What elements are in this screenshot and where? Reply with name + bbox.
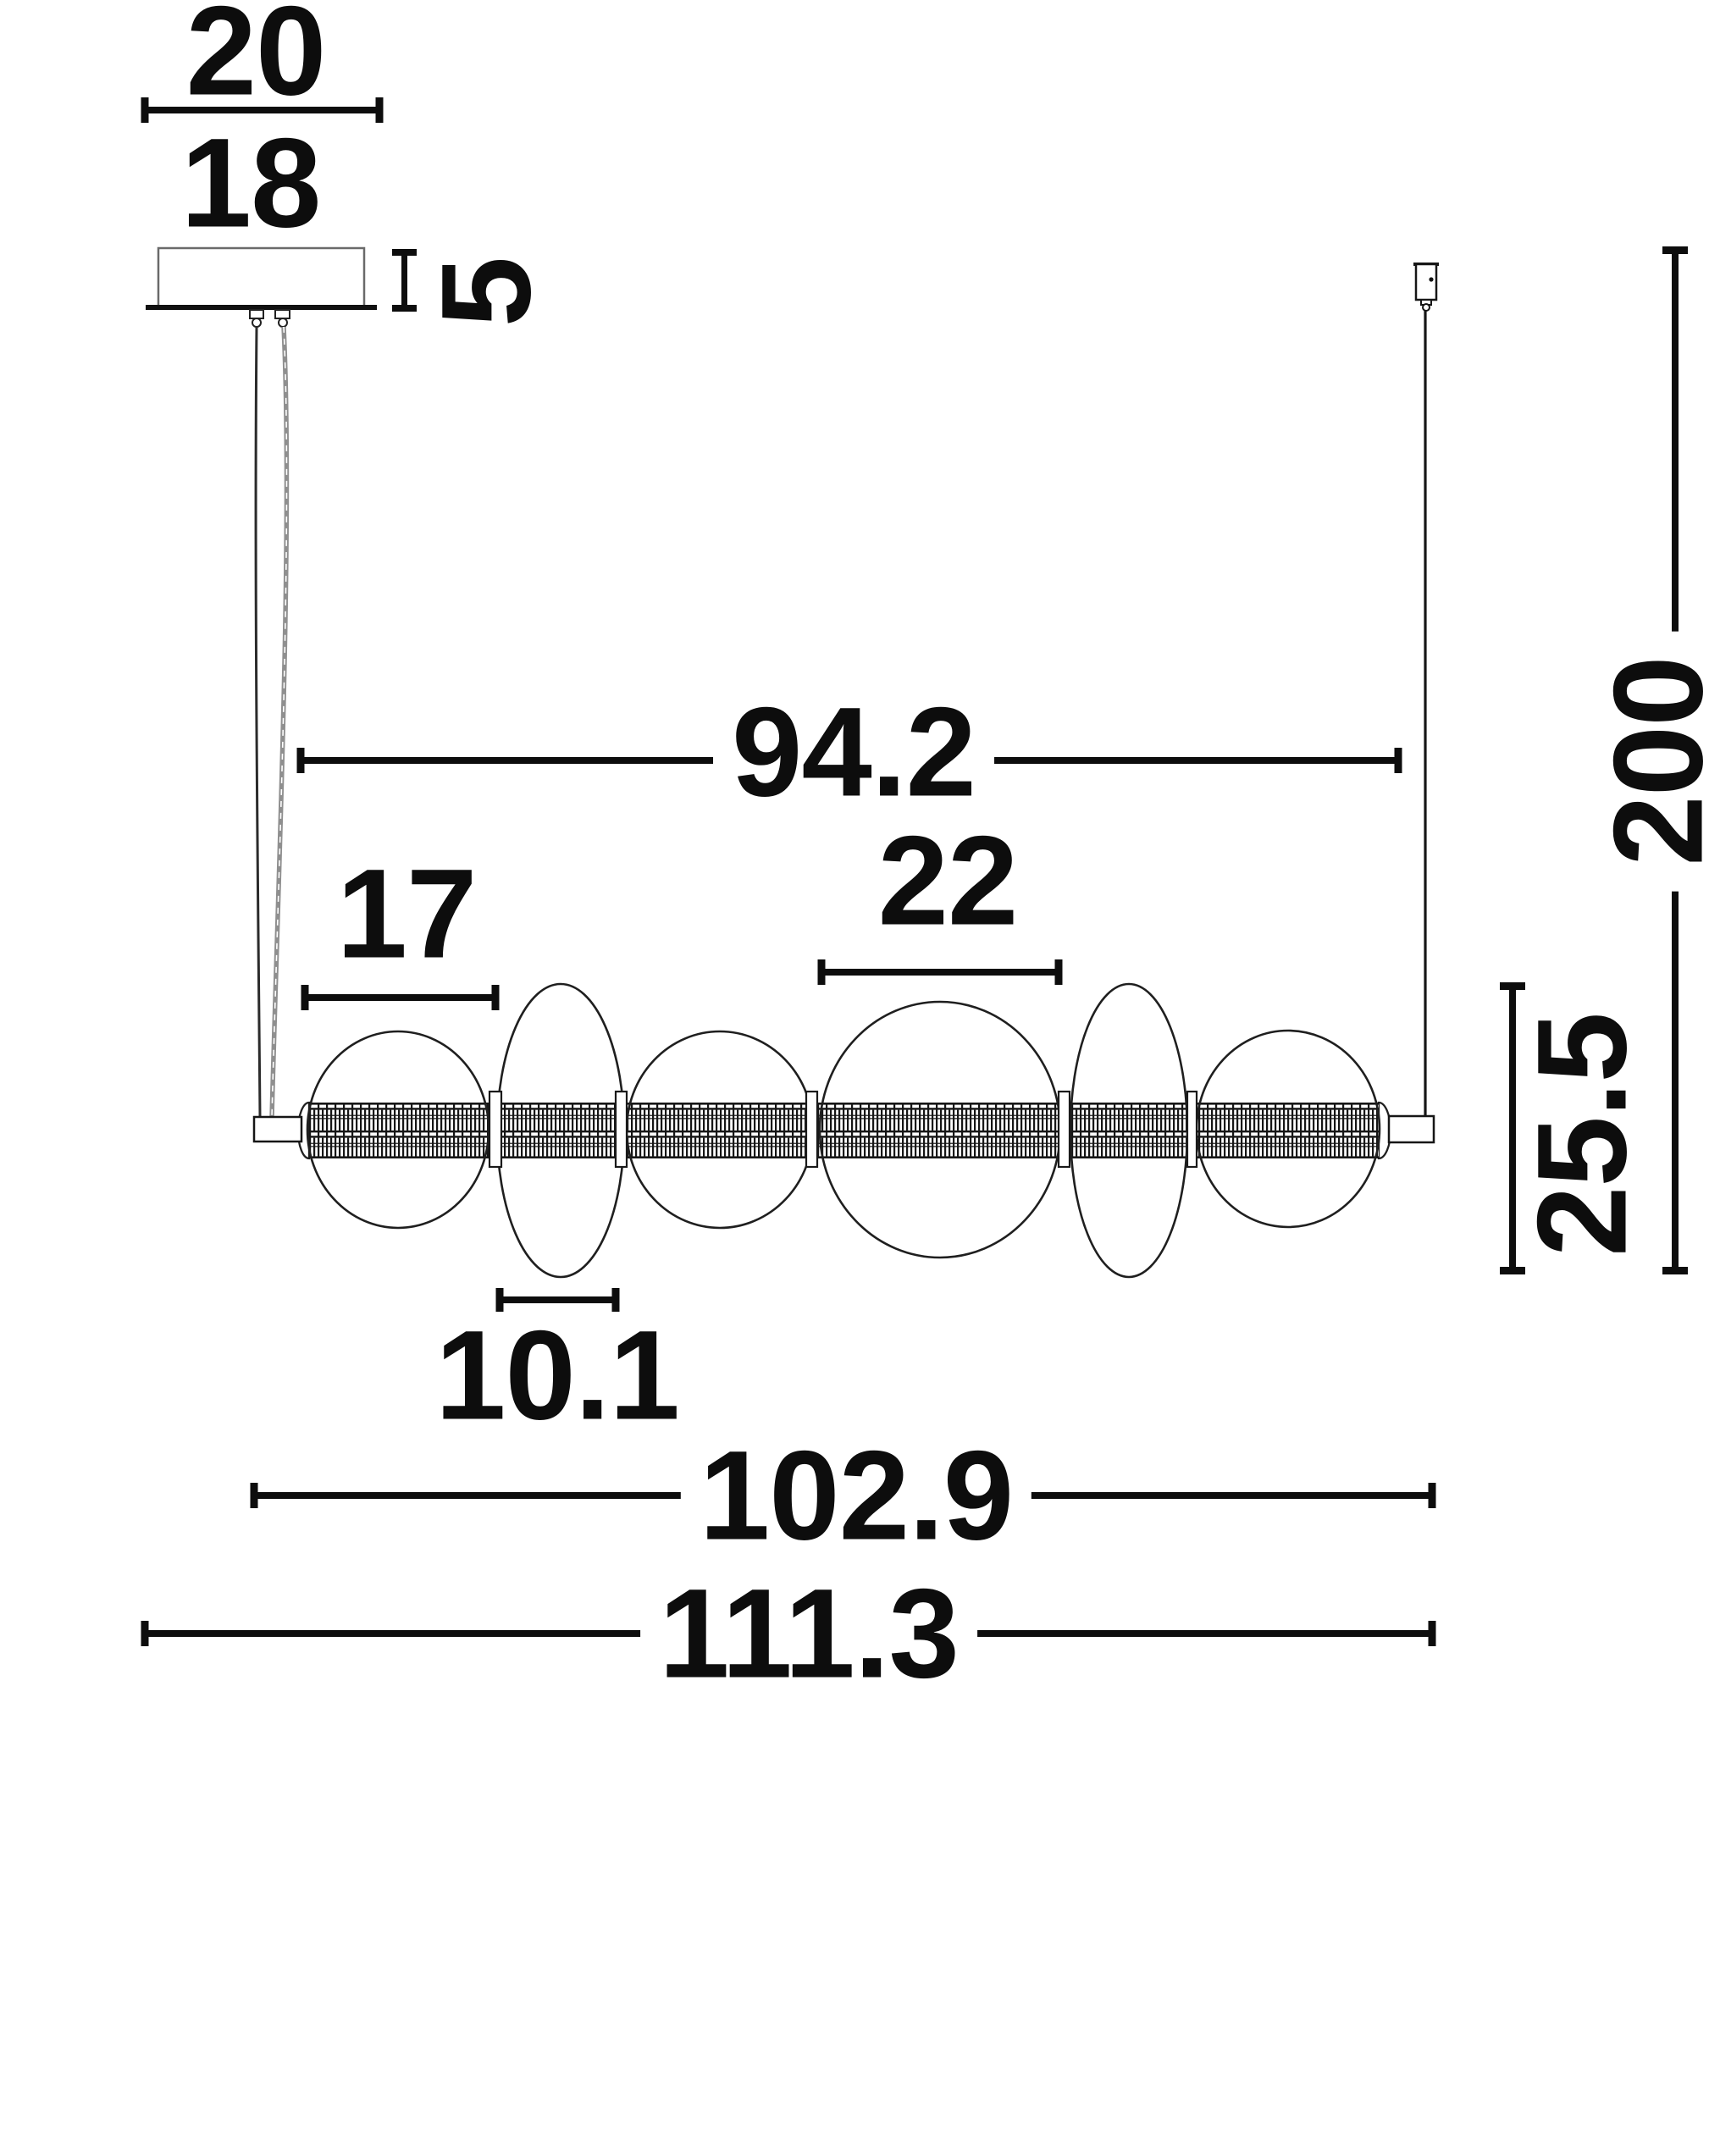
dim-label-fixture-height: 25.5 [1533,1013,1632,1257]
dim-label-small-sphere: 17 [337,865,477,964]
dim-line-canopy-height [392,249,417,312]
left-suspension-cable [256,327,260,1117]
dim-label-canopy-plate: 20 [186,2,326,101]
dim-line-small-sphere [301,985,500,1010]
bar-endcap-right [1389,1116,1434,1142]
dim-label-bar-length: 102.9 [681,1446,1031,1545]
drawing-canvas [0,0,1709,2156]
power-cord [272,327,286,1117]
dim-line-large-sphere [818,959,1063,985]
dim-label-suspension-span: 94.2 [713,703,994,802]
right-ceiling-fitting [1413,263,1439,311]
dim-label-total-length: 111.3 [640,1584,977,1683]
bar-endcap-left [254,1117,301,1142]
dim-label-canopy-body: 18 [181,134,321,233]
dimension-drawing: 20 18 5 94.2 22 17 25.5 200 10.1 102.9 1… [0,0,1709,2156]
fixture-bar [298,1103,1391,1158]
dim-label-large-sphere: 22 [878,832,1018,931]
dim-label-suspension-drop: 200 [1609,631,1708,891]
dim-label-disc-width: 10.1 [435,1326,679,1425]
woven-tube [309,1103,1379,1158]
ceiling-canopy [146,248,377,327]
dim-label-canopy-height: 5 [437,257,536,327]
